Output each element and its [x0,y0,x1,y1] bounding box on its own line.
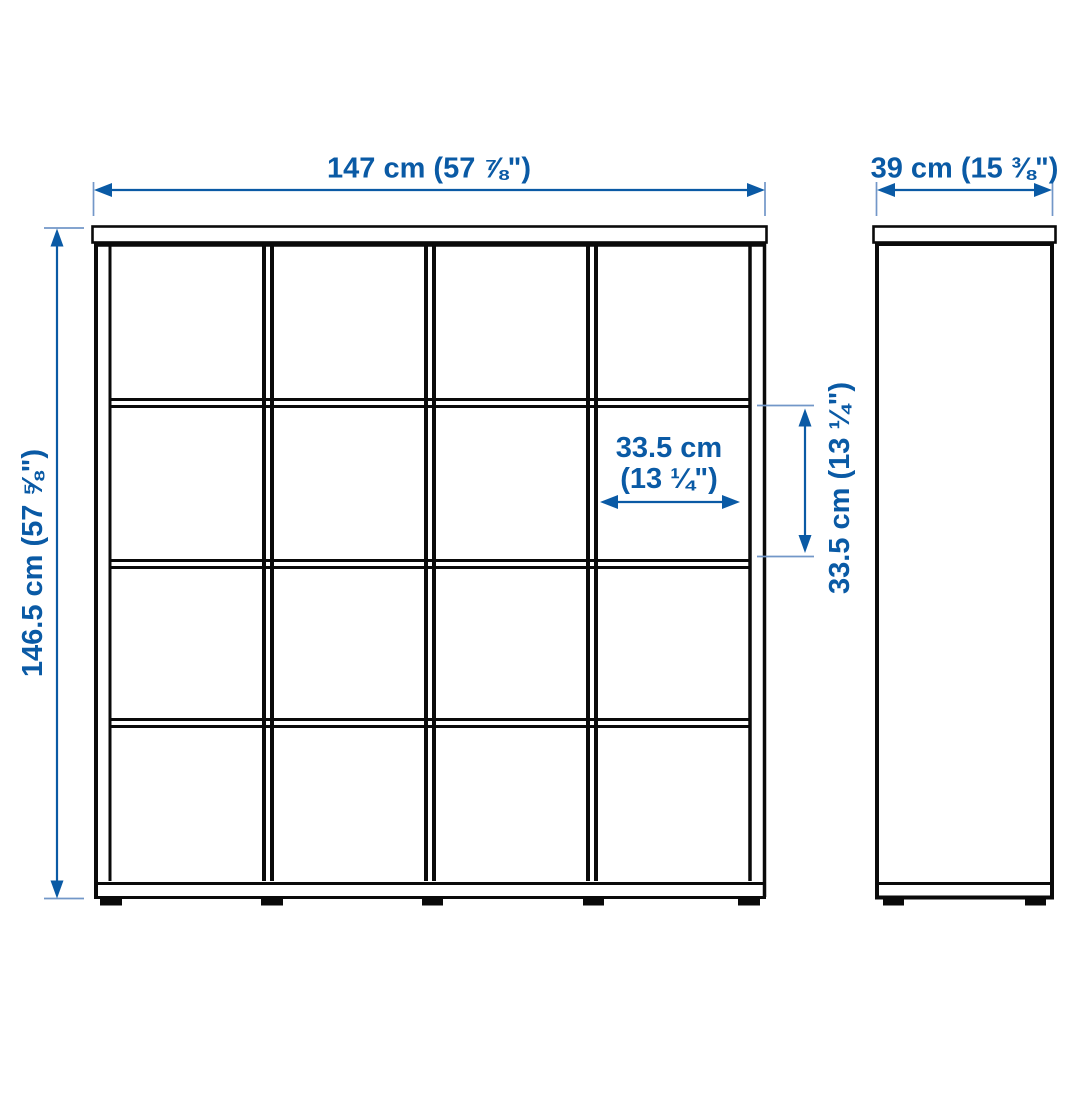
arrowhead-up-icon [51,229,64,247]
arrowhead-left-icon [877,183,895,197]
side-top-panel [874,227,1056,243]
arrowhead-right-icon [747,183,765,197]
foot [738,899,760,906]
foot [583,899,604,906]
arrowhead-down-icon [51,881,64,899]
dimension-cell-height: 33.5 cm (13 ¼") [757,382,856,594]
side-feet [883,899,1046,906]
overall-width-label: 147 cm (57 ⅞") [327,153,531,185]
foot [422,899,443,906]
foot [261,899,283,906]
foot [100,899,122,906]
depth-label: 39 cm (15 ⅜") [871,153,1059,185]
front-view [93,227,767,906]
dimension-overall-width: 147 cm (57 ⅞") [94,153,766,217]
side-view [874,227,1056,906]
dimension-cell-width: 33.5 cm (13 ¼") [600,432,740,509]
arrowhead-left-icon [94,183,112,197]
front-top-panel [93,227,767,243]
foot [1025,899,1046,906]
cell-width-label-line1: 33.5 cm [616,432,722,464]
arrowhead-up-icon [799,409,812,427]
arrowhead-right-icon [722,495,740,509]
arrowhead-down-icon [799,535,812,553]
cell-width-label-line2: (13 ¼") [620,463,718,495]
dimension-depth: 39 cm (15 ⅜") [871,153,1059,217]
front-feet [100,899,760,906]
arrowhead-left-icon [600,495,618,509]
dimension-overall-height: 146.5 cm (57 ⅝") [17,228,84,899]
cell-height-label: 33.5 cm (13 ¼") [824,382,856,594]
side-body-panel [877,244,1052,898]
dimension-diagram: 147 cm (57 ⅞") 39 cm (15 ⅜") 146.5 cm (5… [0,0,1080,1104]
diagram-canvas: 147 cm (57 ⅞") 39 cm (15 ⅜") 146.5 cm (5… [0,0,1080,1104]
foot [883,899,904,906]
front-dividers [264,246,596,881]
arrowhead-right-icon [1034,183,1052,197]
overall-height-label: 146.5 cm (57 ⅝") [17,449,49,677]
